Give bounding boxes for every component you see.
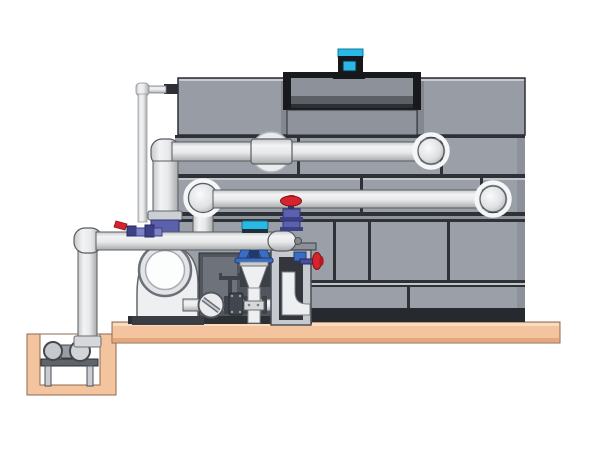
upper-pipe — [172, 142, 424, 161]
lower-pipe-nub — [295, 238, 302, 245]
middle-pipe — [213, 190, 489, 208]
sump-pump — [41, 341, 98, 386]
drop-pipe-coupling — [244, 301, 264, 310]
ball-valve-lever — [114, 221, 127, 230]
globe-valve-body — [283, 221, 300, 228]
pump-suction-eye — [146, 251, 185, 290]
overflow-vertical — [138, 94, 147, 222]
riser-pipe — [153, 161, 178, 213]
upper-dome-elbow — [418, 138, 444, 164]
tower-center-band — [287, 110, 417, 135]
tower-seam-stripe — [175, 216, 525, 219]
globe-valve-bonnet — [283, 209, 300, 218]
tower-seam — [175, 174, 525, 178]
cone-rim — [240, 262, 268, 266]
coupling-bolt — [248, 304, 251, 307]
fan-motor-cap — [338, 49, 363, 57]
middle-dome-elbow-right — [480, 186, 506, 212]
platform-bottom-shade — [113, 338, 559, 342]
diagram-stage: Technical side-view illustration of a cl… — [0, 0, 600, 450]
coupling-bolt — [257, 304, 260, 307]
sump-pump-stand-leg — [45, 366, 51, 386]
side-valve-stem — [300, 259, 314, 264]
tower-top-left-box — [178, 78, 287, 135]
tower-seam-highlight — [175, 178, 525, 180]
lower-pipe-end-cap — [268, 231, 296, 251]
globe-valve-flange — [280, 217, 303, 221]
globe-valve-flange — [280, 227, 303, 231]
manifold-fitting — [145, 225, 154, 237]
suction-drop-pipe — [78, 248, 97, 343]
upper-pipe-coupling — [251, 139, 292, 164]
globe-valve-handwheel — [281, 196, 302, 206]
cooling-tower-diagram: Technical side-view illustration of a cl… — [0, 0, 600, 450]
ball-valve-body — [127, 226, 136, 236]
side-valve-hub — [319, 256, 323, 266]
tower-top-right-box-highlight — [419, 79, 524, 81]
manifold-fitting — [136, 228, 145, 236]
suction-collar — [74, 336, 101, 347]
tower-top-right-box — [417, 78, 525, 135]
globe-valve — [280, 195, 303, 231]
pump-foot — [132, 316, 204, 325]
fan-motor — [333, 49, 365, 79]
ground — [27, 322, 560, 395]
control-valve-actuator-base — [242, 229, 268, 233]
sump-pump-motor — [44, 342, 62, 360]
fan-motor-window — [343, 61, 356, 71]
tower-top-left-box-highlight — [179, 79, 286, 81]
sump-pump-stand-leg — [87, 366, 93, 386]
manifold-fitting — [154, 228, 162, 236]
riser-flange — [148, 211, 182, 220]
control-valve-actuator — [242, 221, 268, 230]
lower-pipe — [96, 232, 278, 250]
fan-cowl-base — [291, 104, 413, 108]
